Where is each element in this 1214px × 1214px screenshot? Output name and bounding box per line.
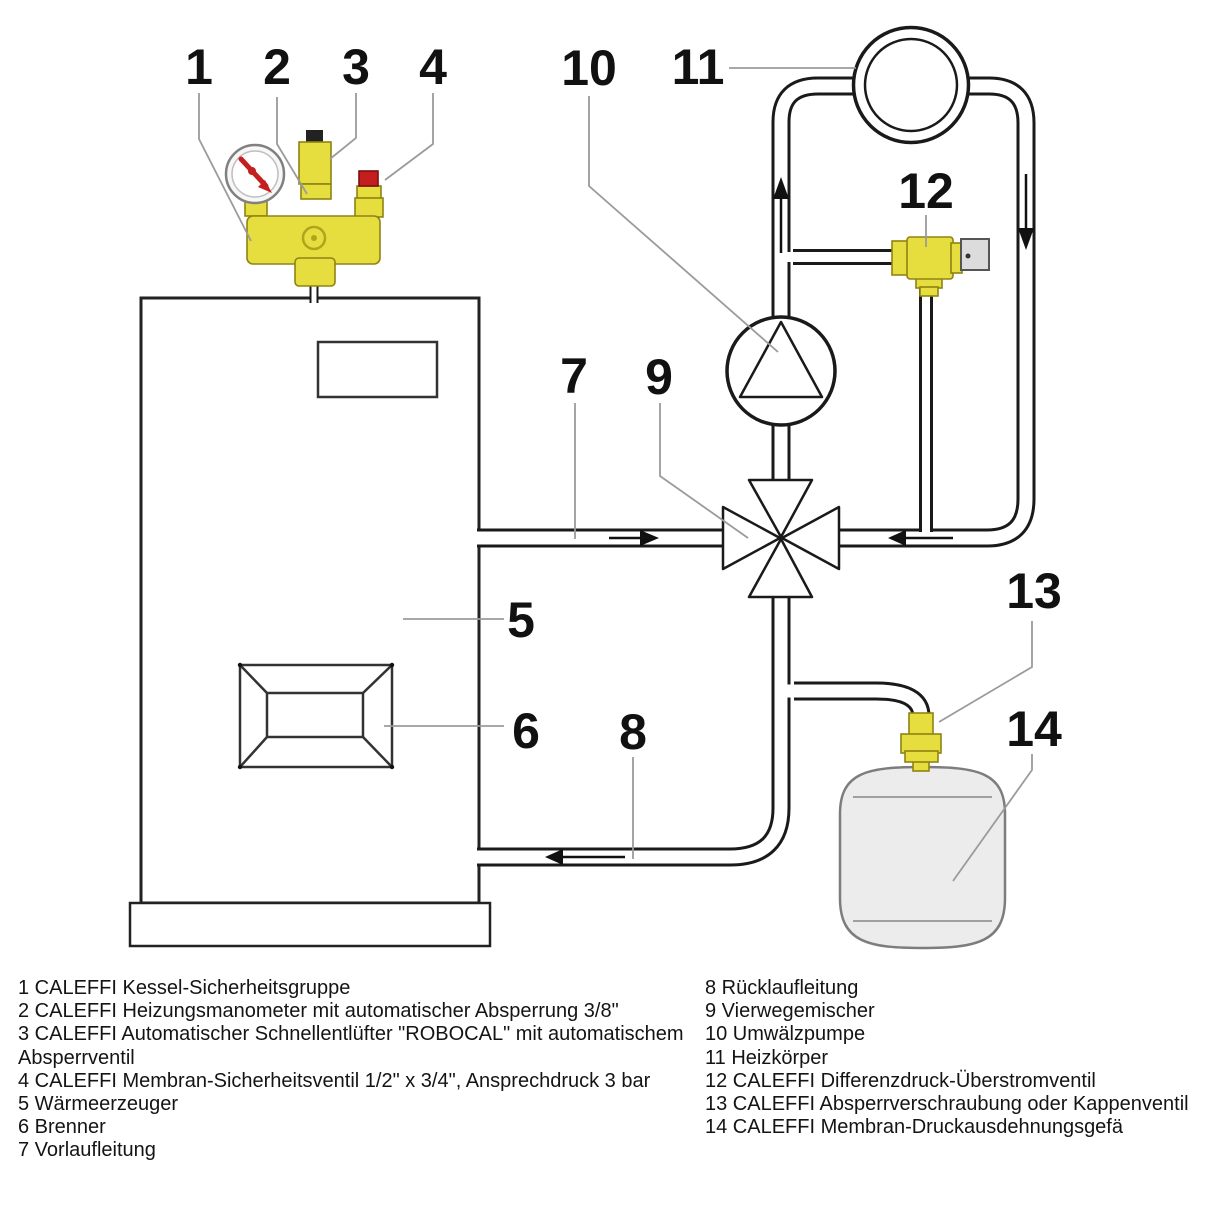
valve13-ring (905, 751, 938, 762)
valve12-cap (961, 239, 989, 270)
callout-10: 10 (561, 40, 617, 96)
legend-line: 13 CALEFFI Absperrverschraubung oder Kap… (705, 1093, 1189, 1116)
legend-line: 3 CALEFFI Automatischer Schnellentlüfter… (18, 1023, 684, 1046)
valve13-top (909, 713, 933, 736)
radiator-inner-circle (865, 39, 957, 131)
callout-14: 14 (1006, 701, 1062, 757)
four-way-mixer (723, 480, 839, 597)
legend-line: 9 Vierwegemischer (705, 1000, 1189, 1023)
circulation-pump (727, 317, 835, 425)
callout-2: 2 (263, 39, 291, 95)
callout-12: 12 (898, 163, 954, 219)
valve13-nut (901, 734, 941, 753)
legend-line: 1 CALEFFI Kessel-Sicherheitsgruppe (18, 977, 684, 1000)
legend-line: 10 Umwälzpumpe (705, 1023, 1189, 1046)
legend-line: 4 CALEFFI Membran-Sicherheitsventil 1/2"… (18, 1070, 684, 1093)
air-vent-body (299, 142, 331, 184)
loop-left-pipe (781, 86, 860, 332)
valve12-body (907, 237, 953, 279)
air-vent-cap (306, 130, 323, 143)
legend-line: 8 Rücklaufleitung (705, 977, 1189, 1000)
boiler-base (130, 903, 490, 946)
differential-valve (892, 237, 989, 296)
valve12-cap-dot (966, 254, 971, 259)
safety-valve-body (357, 186, 381, 199)
safety-group (226, 130, 383, 286)
legend-line: 12 CALEFFI Differenzdruck-Überstromventi… (705, 1070, 1189, 1093)
legend-line: 14 CALEFFI Membran-Druckausdehnungsgefä (705, 1116, 1189, 1139)
legend-line: 6 Brenner (18, 1116, 684, 1139)
radiator (854, 28, 969, 143)
callout-3: 3 (342, 39, 370, 95)
callout-7: 7 (560, 348, 588, 404)
manifold-stem (295, 258, 335, 286)
safety-valve-nut (355, 198, 383, 217)
callout-9: 9 (645, 349, 673, 405)
expansion-vessel (840, 767, 1005, 948)
valve12-bottom-nut (920, 287, 938, 296)
callout-11: 11 (672, 39, 725, 95)
legend-line: Absperrventil (18, 1047, 684, 1070)
shutoff-valve (901, 713, 941, 771)
callout-4: 4 (419, 39, 447, 95)
callout-5: 5 (507, 592, 535, 648)
legend-left-column: 1 CALEFFI Kessel-Sicherheitsgruppe 2 CAL… (18, 977, 684, 1163)
safety-valve-red-cap (359, 171, 378, 186)
callout-6: 6 (512, 703, 540, 759)
pressure-gauge (226, 145, 284, 203)
legend-line: 5 Wärmeerzeuger (18, 1093, 684, 1116)
legend-line: 11 Heizkörper (705, 1047, 1189, 1070)
callout-8: 8 (619, 704, 647, 760)
callout-1: 1 (185, 39, 213, 95)
boiler (130, 298, 490, 946)
boiler-outline (141, 298, 479, 903)
callout-13: 13 (1006, 563, 1062, 619)
legend-line: 7 Vorlaufleitung (18, 1139, 684, 1162)
legend-line: 2 CALEFFI Heizungsmanometer mit automati… (18, 1000, 684, 1023)
legend-right-column: 8 Rücklaufleitung 9 Vierwegemischer 10 U… (705, 977, 1189, 1139)
